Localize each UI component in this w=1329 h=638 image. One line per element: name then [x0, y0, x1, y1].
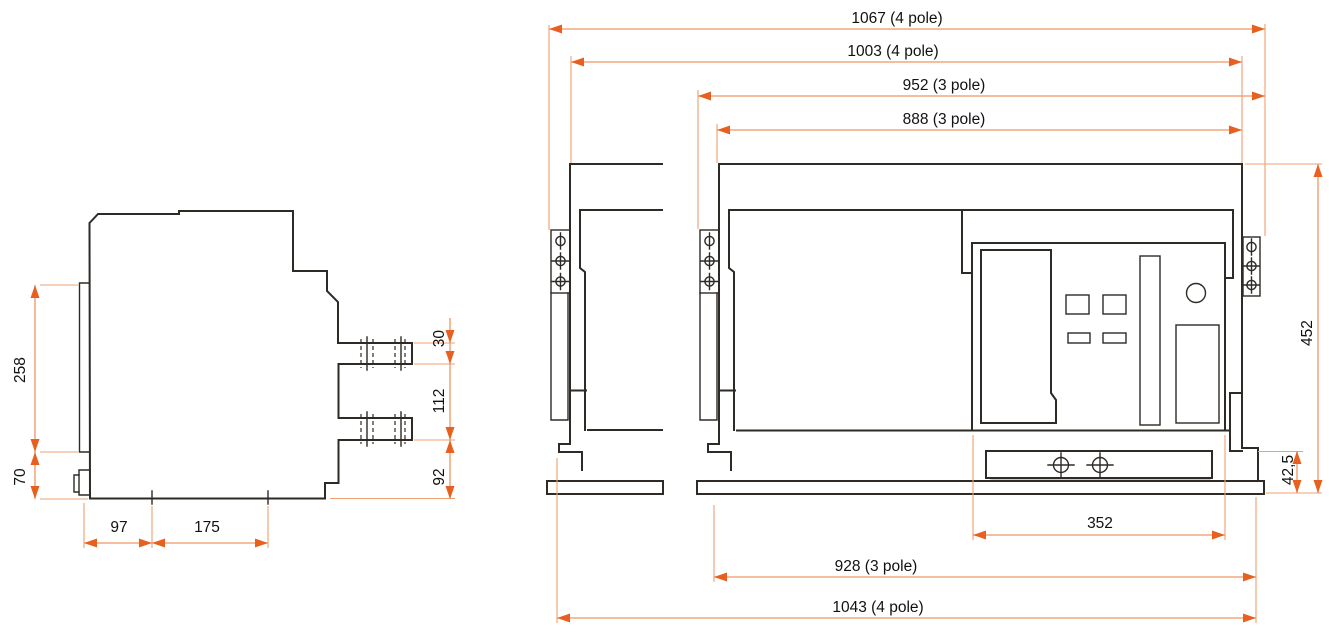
- dim-1003-4pole: 1003 (4 pole): [571, 43, 1242, 62]
- side-view-outline: [90, 211, 413, 499]
- fragment-base-plate: [547, 481, 663, 494]
- dim-952-3pole: 952 (3 pole): [698, 77, 1265, 96]
- dim-1067-4pole: 1067 (4 pole): [549, 10, 1265, 29]
- dim-label-352: 352: [1087, 515, 1113, 532]
- dim-label-452: 452: [1299, 320, 1316, 346]
- side-terminal-upper: [361, 337, 405, 370]
- dim-label-928: 928 (3 pole): [835, 558, 918, 575]
- front-view-fragment: [547, 164, 663, 494]
- dim-352: 352: [973, 515, 1225, 535]
- dim-label-1003: 1003 (4 pole): [847, 43, 938, 60]
- pushbutton-left: [1066, 295, 1089, 314]
- control-panel: [962, 210, 1225, 431]
- fragment-bracket-screws: [552, 233, 569, 290]
- dim-label-70: 70: [12, 468, 29, 486]
- rating-label-window: [1176, 325, 1219, 423]
- indicator-window-right: [1103, 333, 1126, 343]
- dim-terminal-stack: 30 112 92: [431, 318, 455, 499]
- dim-452: 452: [1299, 164, 1318, 493]
- side-view: [74, 211, 412, 504]
- dim-42-5: 42,5: [1280, 451, 1297, 493]
- indicator-window-left: [1068, 333, 1090, 343]
- fragment-outline: [559, 164, 662, 470]
- rail-bolt-left: [1048, 453, 1074, 477]
- front-view-main: [697, 164, 1264, 494]
- dim-258: 258 70: [12, 285, 40, 499]
- dim-label-97: 97: [110, 519, 127, 536]
- dim-928-3pole: 928 (3 pole): [714, 558, 1256, 577]
- panel-step-left: [962, 210, 972, 273]
- dim-label-30: 30: [431, 330, 448, 348]
- dim-888-3pole: 888 (3 pole): [717, 111, 1242, 130]
- main-flange-left: [700, 293, 717, 420]
- fragment-flange: [551, 293, 568, 420]
- main-bracket-right-screws: [1244, 239, 1259, 293]
- pushbutton-right: [1103, 295, 1126, 314]
- reset-button: [1187, 284, 1206, 303]
- panel-face: [972, 243, 1225, 431]
- main-base-plate: [697, 481, 1264, 494]
- dim-label-175: 175: [194, 519, 220, 536]
- dimensions: 1067 (4 pole) 1003 (4 pole) 952 (3 pole)…: [12, 10, 1322, 623]
- dim-label-888: 888 (3 pole): [903, 111, 986, 128]
- main-outline: [708, 164, 1258, 481]
- dim-label-952: 952 (3 pole): [903, 77, 986, 94]
- dim-label-112: 112: [431, 389, 448, 414]
- extension-lines: [40, 24, 1322, 623]
- dim-label-258: 258: [12, 357, 29, 383]
- dim-97: 97: [84, 519, 152, 543]
- panel-nameplate: [981, 250, 1056, 423]
- dim-label-42-5: 42,5: [1280, 455, 1297, 485]
- side-foot-nub: [79, 470, 90, 495]
- dim-label-92: 92: [431, 468, 448, 485]
- dim-1043-4pole: 1043 (4 pole): [557, 599, 1256, 618]
- dim-175: 175: [152, 519, 268, 543]
- side-rear-plate: [80, 283, 90, 452]
- dim-label-1043: 1043 (4 pole): [832, 599, 923, 616]
- side-foot-nub-small: [74, 475, 79, 492]
- technical-drawing-canvas: 1067 (4 pole) 1003 (4 pole) 952 (3 pole)…: [0, 0, 1329, 638]
- charging-handle-slot: [1140, 256, 1160, 425]
- main-bracket-left-screws: [701, 233, 718, 290]
- drawing-page: 1067 (4 pole) 1003 (4 pole) 952 (3 pole)…: [0, 0, 1329, 638]
- drawout-rail: [986, 451, 1212, 481]
- dim-label-1067: 1067 (4 pole): [851, 10, 942, 27]
- rail-bolt-right: [1087, 453, 1113, 477]
